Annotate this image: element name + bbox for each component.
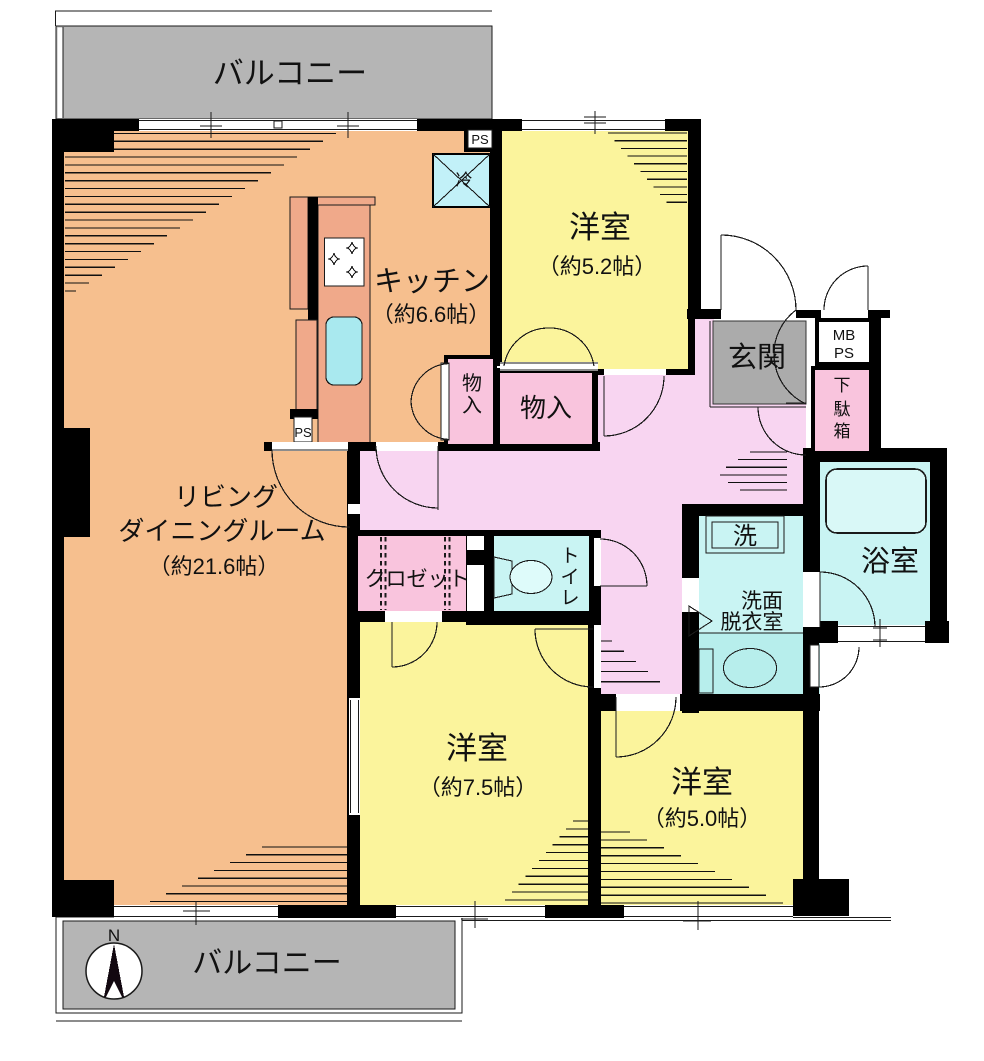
svg-text:クロゼット: クロゼット [365,568,470,591]
svg-text:駄: 駄 [834,400,851,419]
svg-text:レ: レ [560,588,579,609]
svg-text:洗: 洗 [733,523,757,550]
svg-text:PS: PS [294,425,312,440]
svg-text:バルコニー: バルコニー [192,947,341,980]
svg-text:物: 物 [462,372,482,395]
svg-text:洋室: 洋室 [569,210,631,245]
svg-text:（約7.5帖）: （約7.5帖） [419,775,538,800]
svg-text:イ: イ [560,567,579,588]
svg-text:洋室: 洋室 [446,731,508,766]
svg-text:バルコニー: バルコニー [213,56,367,91]
svg-text:（約6.6帖）: （約6.6帖） [372,302,491,327]
svg-text:脱衣室: 脱衣室 [721,611,784,634]
svg-text:PS: PS [471,132,489,147]
svg-text:物入: 物入 [520,393,572,423]
svg-text:N: N [108,926,120,945]
svg-text:キッチン: キッチン [374,266,490,298]
svg-text:（約5.0帖）: （約5.0帖） [643,806,762,831]
svg-text:冷: 冷 [456,171,473,190]
svg-text:PS: PS [834,345,854,362]
svg-text:（約5.2帖）: （約5.2帖） [538,254,657,279]
svg-text:MB: MB [833,327,856,344]
svg-text:下: 下 [834,376,851,395]
svg-text:リビング: リビング [174,482,278,512]
svg-text:玄関: 玄関 [728,341,786,374]
svg-text:箱: 箱 [834,422,851,441]
svg-text:（約21.6帖）: （約21.6帖） [149,554,280,579]
svg-text:ダイニングルーム: ダイニングルーム [118,516,325,546]
svg-text:洋室: 洋室 [671,765,733,800]
svg-text:ト: ト [560,546,579,567]
svg-text:浴室: 浴室 [861,545,919,578]
svg-text:洗面: 洗面 [741,590,783,613]
svg-text:入: 入 [462,395,482,417]
